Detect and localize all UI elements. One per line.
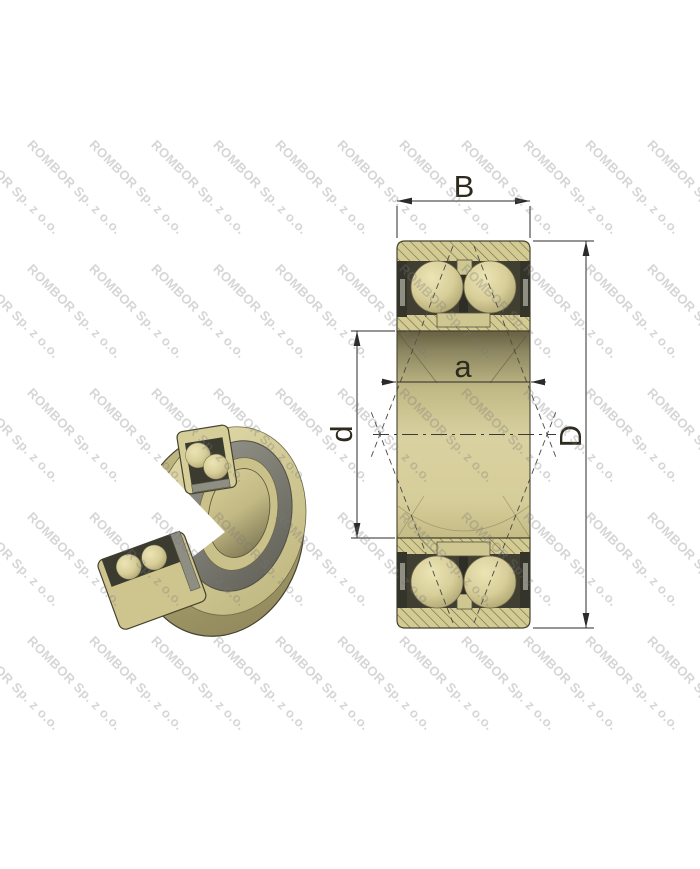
cut-face-upper <box>176 424 237 494</box>
dimension-label-width-B: B <box>446 171 482 202</box>
section-top-assembly <box>397 241 530 331</box>
bearing-3d-view <box>28 412 323 652</box>
bearing-cross-section <box>351 198 594 628</box>
raceway-notch-bottom <box>437 542 490 556</box>
section-bottom-assembly <box>397 538 530 628</box>
dimension-label-outer-D: D <box>555 418 589 454</box>
bearing-product-image: B a d D ROMBOR Sp. z o.o.ROMBOR Sp. z o.… <box>0 0 700 869</box>
dimension-label-bore-d: d <box>326 416 360 452</box>
raceway-notch-top <box>437 313 490 327</box>
dimension-label-contact-span-a: a <box>445 351 481 382</box>
